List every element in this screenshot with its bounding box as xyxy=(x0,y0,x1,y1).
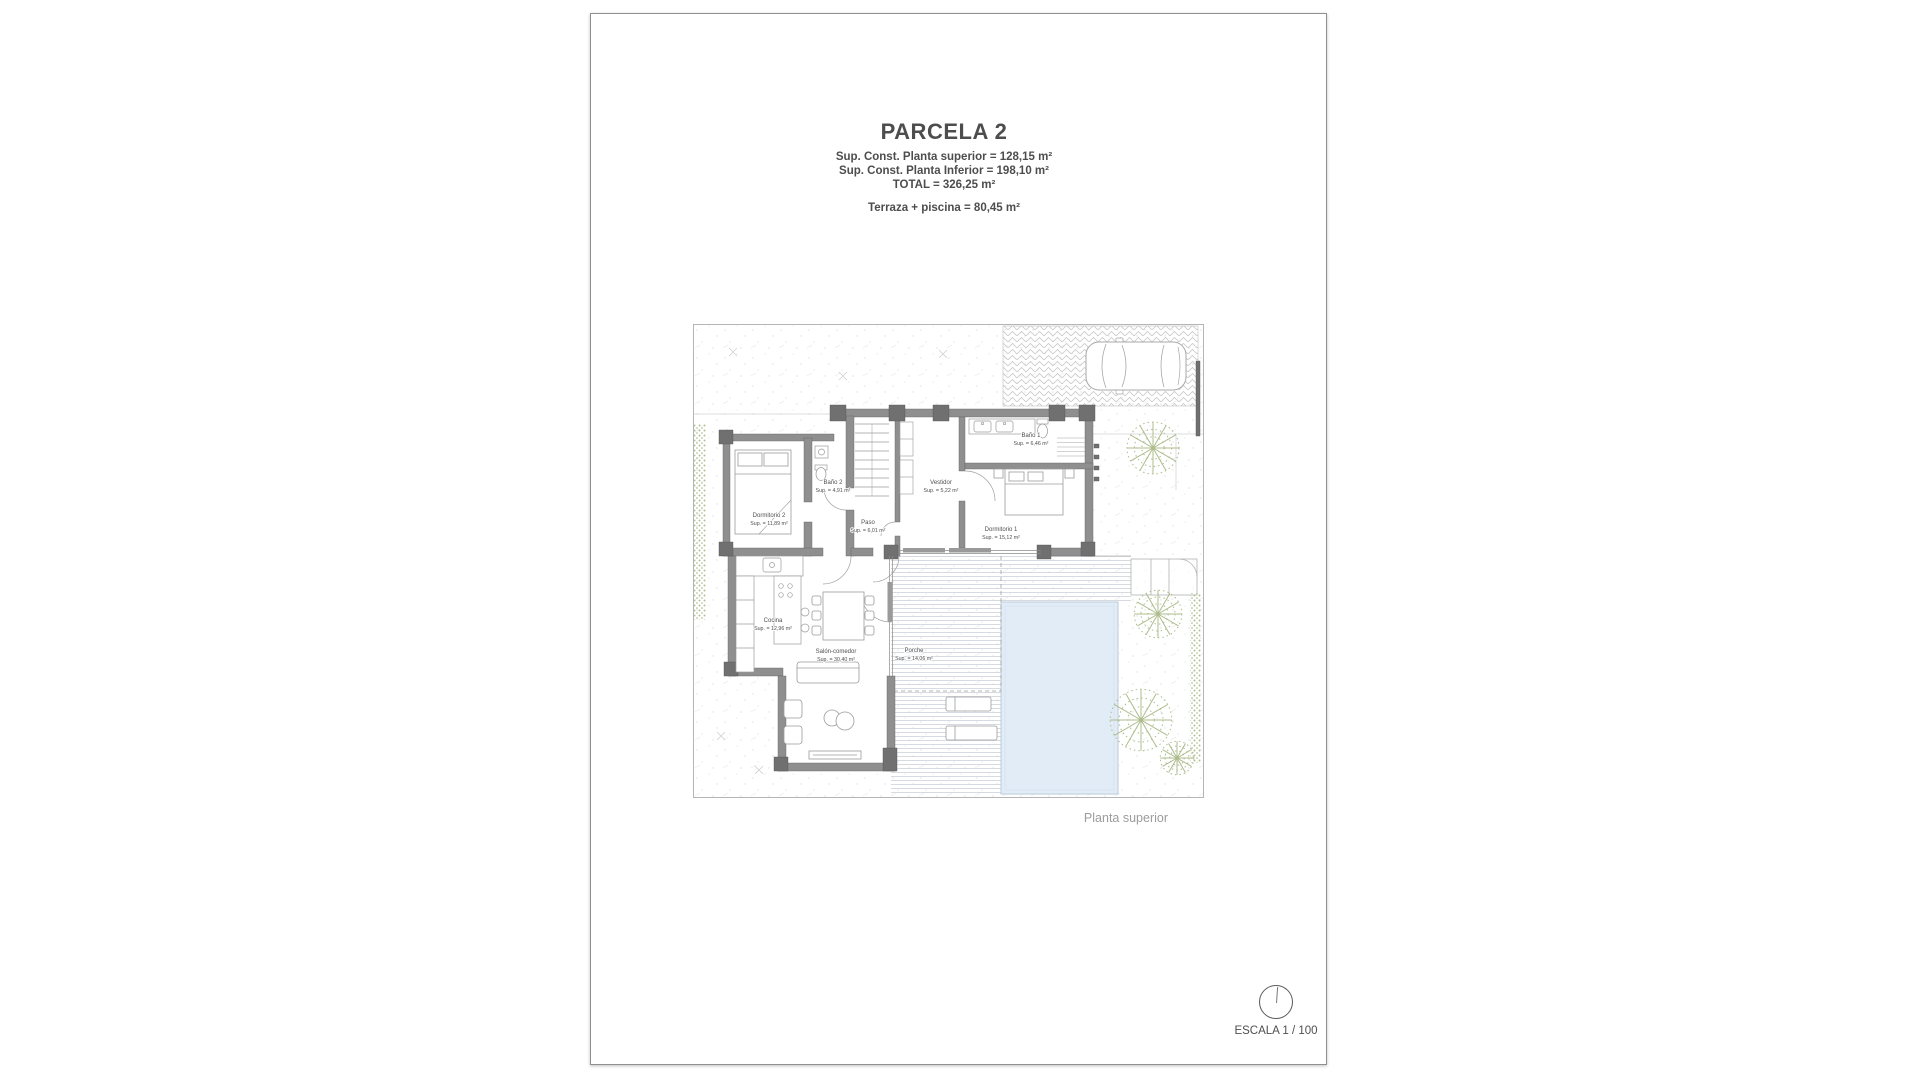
hedge-right xyxy=(1190,593,1201,763)
room-label-dormitorio-2: Dormitorio 2 xyxy=(753,513,786,519)
armchair xyxy=(784,726,802,744)
area-line-terraza: Terraza + piscina = 80,45 m² xyxy=(591,202,1297,214)
bed-dormitorio-1 xyxy=(994,469,1074,515)
page-title: PARCELA 2 xyxy=(591,119,1297,145)
room-area-salon-comedor: Sup. = 30,40 m² xyxy=(817,657,855,663)
sofa xyxy=(797,662,859,683)
area-line-inferior: Sup. Const. Planta Inferior = 198,10 m² xyxy=(591,164,1297,178)
room-area-bano-2: Sup. = 4,91 m² xyxy=(816,488,851,494)
room-label-vestidor: Vestidor xyxy=(930,480,952,486)
dining-table xyxy=(823,592,864,640)
room-label-porche: Porche xyxy=(904,648,924,654)
room-label-bano-1: Baño 1 xyxy=(1021,433,1041,439)
coffee-table xyxy=(836,712,854,730)
title-block: PARCELA 2 Sup. Const. Planta superior = … xyxy=(591,119,1297,214)
room-area-dormitorio-1: Sup. = 15,12 m² xyxy=(982,535,1020,541)
room-label-dormitorio-1: Dormitorio 1 xyxy=(985,527,1018,533)
room-area-porche: Sup. = 14,06 m² xyxy=(895,656,933,662)
room-area-dormitorio-2: Sup. = 11,89 m² xyxy=(750,521,788,527)
stool xyxy=(801,608,809,616)
room-label-salon-comedor: Salón-comedor xyxy=(816,649,857,655)
room-label-paso: Paso xyxy=(861,520,875,526)
room-area-bano-1: Sup. = 6,46 m² xyxy=(1014,441,1049,447)
scale-label: ESCALA 1 / 100 xyxy=(1196,1025,1356,1037)
stool xyxy=(801,624,809,632)
plan-caption: Planta superior xyxy=(1084,811,1168,825)
floor-plan-drawing: Dormitorio 2 Sup. = 11,89 m² Baño 2 Sup.… xyxy=(693,324,1204,798)
north-indicator-hand xyxy=(1276,987,1278,1003)
area-line-superior: Sup. Const. Planta superior = 128,15 m² xyxy=(591,150,1297,164)
hedge-left xyxy=(694,424,706,620)
room-area-cocina: Sup. = 12,96 m² xyxy=(754,626,792,632)
north-indicator-icon xyxy=(1259,985,1293,1019)
room-label-bano-2: Baño 2 xyxy=(823,480,843,486)
drawing-sheet: PARCELA 2 Sup. Const. Planta superior = … xyxy=(590,13,1327,1065)
room-area-paso: Sup. = 6,01 m² xyxy=(851,528,886,534)
pool-water xyxy=(1001,602,1118,794)
room-label-cocina: Cocina xyxy=(764,618,783,624)
area-line-total: TOTAL = 326,25 m² xyxy=(591,178,1297,192)
room-area-vestidor: Sup. = 5,22 m² xyxy=(924,488,959,494)
car-icon xyxy=(1086,338,1186,394)
armchair xyxy=(784,700,802,718)
boundary-wall xyxy=(1196,361,1200,436)
swimming-pool xyxy=(1001,602,1118,794)
dining-set xyxy=(812,592,874,640)
